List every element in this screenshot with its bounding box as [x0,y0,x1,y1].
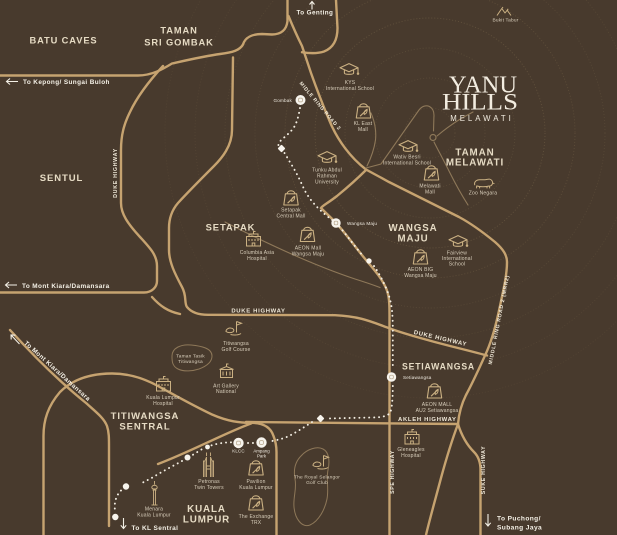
svg-text:TRX: TRX [251,520,262,526]
svg-text:Kuala Lumpur: Kuala Lumpur [137,513,171,519]
svg-text:MELAWATI: MELAWATI [446,158,504,169]
svg-text:AKLEH HIGHWAY: AKLEH HIGHWAY [398,417,457,423]
svg-text:Kuala Lumpur: Kuala Lumpur [239,485,273,491]
svg-text:Mall: Mall [425,190,435,196]
svg-text:To Puchong/: To Puchong/ [497,516,541,523]
svg-text:KLCC: KLCC [232,449,245,454]
svg-text:DUKE HIGHWAY: DUKE HIGHWAY [231,309,285,315]
svg-text:International School: International School [383,161,431,167]
svg-text:Titiwangsa: Titiwangsa [178,359,203,365]
svg-text:Twin Towers: Twin Towers [194,485,224,491]
svg-text:Hospital: Hospital [247,256,267,262]
svg-text:To Mont Kiara/Damansara: To Mont Kiara/Damansara [22,283,110,290]
svg-text:LUMPUR: LUMPUR [183,515,230,526]
svg-text:TAMAN: TAMAN [160,26,197,36]
svg-text:Bukit Tabur: Bukit Tabur [492,18,518,24]
svg-text:Wangsa Maju: Wangsa Maju [292,252,325,258]
svg-text:The Royal Selangor: The Royal Selangor [294,475,340,481]
svg-text:MELAWATI: MELAWATI [450,114,514,123]
svg-text:Golf Club: Golf Club [306,480,328,486]
svg-text:HILLS: HILLS [442,90,518,115]
svg-text:SETAPAK: SETAPAK [206,222,256,233]
svg-text:KUALA: KUALA [187,504,226,515]
svg-text:BATU CAVES: BATU CAVES [29,36,97,46]
svg-text:DUKE HIGHWAY: DUKE HIGHWAY [113,148,119,198]
svg-text:To KL Sentral: To KL Sentral [132,525,179,532]
svg-text:School: School [449,262,466,268]
svg-text:Central Mall: Central Mall [276,214,305,220]
svg-text:To Genting: To Genting [297,10,334,17]
svg-text:International School: International School [326,86,374,92]
svg-text:Golf Course: Golf Course [222,347,251,353]
svg-text:Hospital: Hospital [401,453,421,459]
svg-text:Mall: Mall [358,127,368,133]
svg-text:SENTUL: SENTUL [40,173,83,184]
svg-text:Wangsa Maju: Wangsa Maju [404,273,437,279]
svg-text:Gombak: Gombak [273,98,292,103]
svg-text:National: National [216,389,236,395]
svg-text:TITIWANGSA: TITIWANGSA [111,411,180,422]
svg-text:SETIAWANGSA: SETIAWANGSA [402,361,475,372]
svg-text:To Kepong/ Sungai Buloh: To Kepong/ Sungai Buloh [23,79,110,86]
svg-text:SENTRAL: SENTRAL [119,422,170,433]
svg-text:Taman Tasik: Taman Tasik [176,354,205,360]
svg-text:SUKE HIGHWAY: SUKE HIGHWAY [481,446,487,495]
svg-text:Zoo Negara: Zoo Negara [469,191,497,197]
svg-text:Setiawangsa: Setiawangsa [403,375,432,380]
svg-text:Subang Jaya: Subang Jaya [497,525,542,532]
svg-text:MAJU: MAJU [397,234,428,245]
svg-text:University: University [315,180,339,186]
svg-text:AU2 Setiawangsa: AU2 Setiawangsa [416,408,459,414]
svg-text:SRI GOMBAK: SRI GOMBAK [144,38,213,48]
svg-text:Hospital: Hospital [153,401,173,407]
svg-text:WANGSA: WANGSA [389,223,438,234]
svg-text:SPE HIGHWAY: SPE HIGHWAY [390,450,396,494]
svg-text:Park: Park [257,454,267,459]
svg-text:Wangsa Maju: Wangsa Maju [347,221,377,226]
